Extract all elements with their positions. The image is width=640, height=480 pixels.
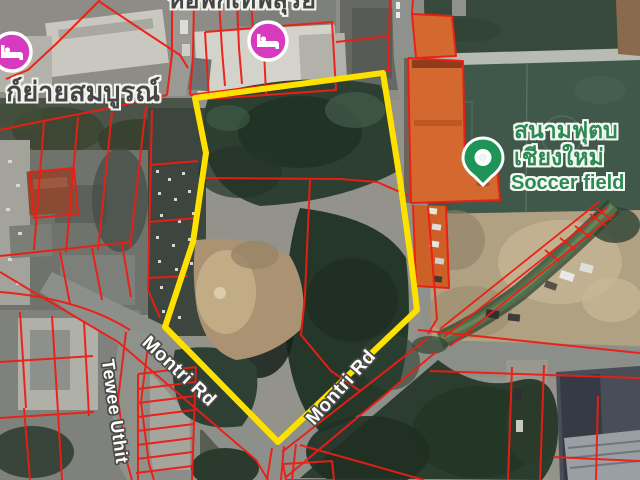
poi-label-soccer-field-th1[interactable]: สนามฟุตบ	[514, 118, 618, 142]
bed-glyph	[257, 34, 261, 47]
poi-label-soccer-field-th2[interactable]: เชียงใหม่	[514, 145, 604, 169]
poi-label-left-building[interactable]: ก์ย่ายสมบูรณ์	[6, 78, 160, 106]
lodging-icon-left[interactable]	[0, 30, 34, 74]
poi-label-soccer-field-en[interactable]: Soccer field	[511, 173, 624, 194]
poi-label-dormitory[interactable]: หอพักเทพสุริย	[168, 0, 316, 13]
soccer-field-pin-icon[interactable]	[461, 136, 505, 188]
brown-strip	[616, 0, 640, 56]
bed-glyph	[1, 45, 5, 58]
satellite-map-view: หอพักเทพสุริย ก์ย่ายสมบูรณ์ สนามฟุตบ เชี…	[0, 0, 640, 480]
lodging-icon[interactable]	[246, 19, 290, 63]
